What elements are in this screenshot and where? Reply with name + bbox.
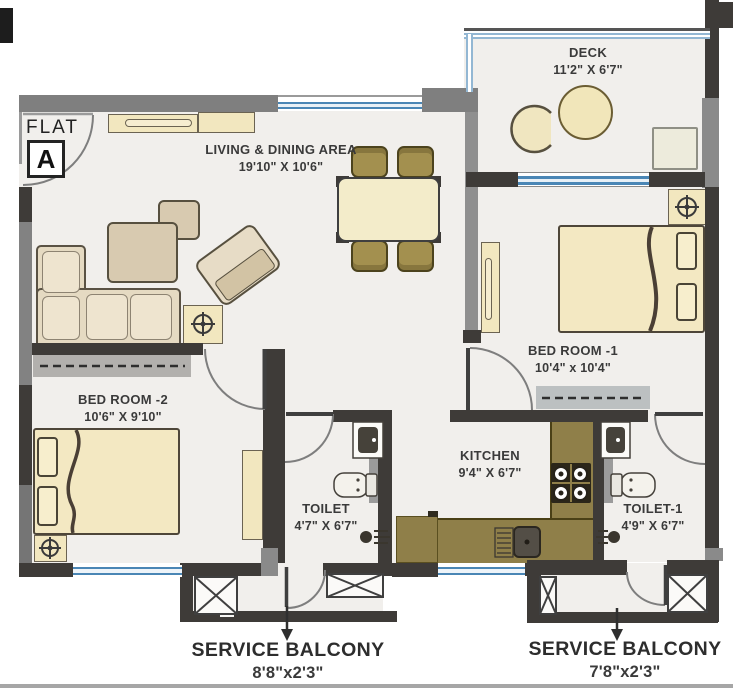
room-label-bedroom2: BED ROOM -2 10'6" X 9'10" — [63, 392, 183, 425]
bedroom2-door — [205, 349, 265, 409]
room-label-bedroom1: BED ROOM -1 10'4" x 10'4" — [513, 343, 633, 376]
room-name: TOILET — [276, 501, 376, 518]
room-dims: 10'6" X 9'10" — [63, 409, 183, 425]
bed2-blanket-fold — [68, 430, 79, 533]
sink-drainboard — [495, 528, 530, 557]
bed1-blanket-fold — [649, 227, 656, 331]
room-name: SERVICE BALCONY — [505, 637, 733, 662]
room-label-service-balcony-left: SERVICE BALCONY 8'8"x2'3" — [168, 638, 408, 685]
room-dims: 8'8"x2'3" — [168, 663, 408, 684]
room-dims: 11'2" X 6'7" — [538, 62, 638, 78]
room-name: BED ROOM -2 — [63, 392, 183, 409]
room-name: KITCHEN — [440, 448, 540, 465]
room-name: BED ROOM -1 — [513, 343, 633, 360]
room-dims: 19'10" X 10'6" — [181, 159, 381, 175]
balcony-left-door — [287, 567, 326, 608]
stove-burners — [552, 464, 590, 502]
room-name: DECK — [538, 45, 638, 62]
balcony-left-arrow — [281, 606, 293, 641]
room-label-deck: DECK 11'2" X 6'7" — [538, 45, 638, 78]
room-label-toilet: TOILET 4'7" X 6'7" — [276, 501, 376, 534]
floor-plan: FLAT A LIVING & DINING AREA 19'10" X 10'… — [0, 0, 733, 690]
room-dims: 9'4" X 6'7" — [440, 465, 540, 481]
balcony-crate — [195, 574, 707, 614]
room-label-service-balcony-right: SERVICE BALCONY 7'8"x2'3" — [505, 637, 733, 684]
room-dims: 7'8"x2'3" — [505, 662, 733, 683]
room-name: LIVING & DINING AREA — [181, 142, 381, 159]
room-name: TOILET-1 — [603, 501, 703, 518]
flat-label: FLAT — [26, 116, 86, 141]
room-name: SERVICE BALCONY — [168, 638, 408, 663]
shower-icon — [360, 531, 620, 543]
toilet1-door — [655, 414, 705, 464]
balcony-right-door — [627, 565, 666, 605]
flat-unit-badge: A — [27, 140, 65, 178]
deck-chair — [511, 106, 551, 152]
room-label-toilet1: TOILET-1 4'9" X 6'7" — [603, 501, 703, 534]
flat-text: FLAT — [26, 116, 86, 141]
room-dims: 10'4" x 10'4" — [513, 360, 633, 376]
room-dims: 4'7" X 6'7" — [276, 518, 376, 534]
room-label-kitchen: KITCHEN 9'4" X 6'7" — [440, 448, 540, 481]
room-dims: 4'9" X 6'7" — [603, 518, 703, 534]
toilet-door — [285, 414, 333, 462]
room-label-living: LIVING & DINING AREA 19'10" X 10'6" — [181, 142, 381, 175]
